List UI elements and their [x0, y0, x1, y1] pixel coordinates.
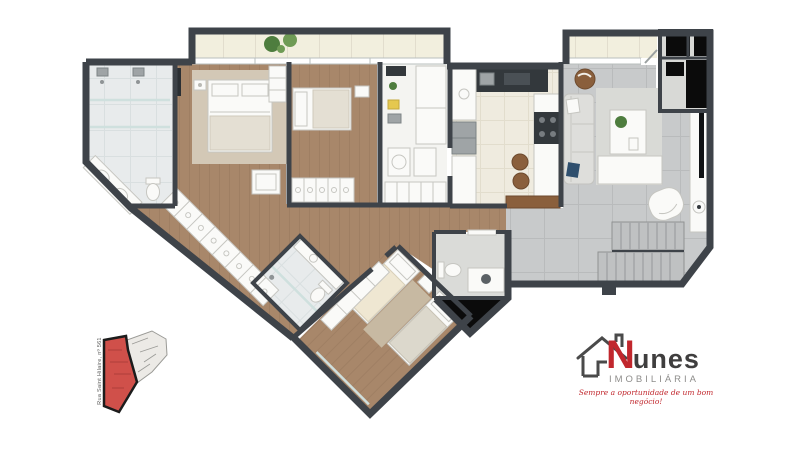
floorplan-page: Nunes IMOBILIÁRIA Sempre a oportunidade … — [0, 0, 800, 450]
washing-machine-icon — [388, 148, 410, 176]
elevator-core — [660, 31, 711, 111]
toilet-icon — [438, 262, 461, 278]
dining-table — [598, 156, 662, 184]
balcony-bedrooms — [193, 31, 446, 62]
counter — [416, 66, 446, 144]
pillow — [566, 162, 580, 178]
plant-icon — [283, 33, 297, 47]
street-label: Rua Saint Hilaire, nº 561 — [97, 323, 103, 419]
brand-tagline: Sempre a oportunidade de um bom negócio! — [566, 388, 726, 406]
entry-stub — [602, 284, 616, 295]
pouf — [575, 69, 595, 89]
window-sliding — [193, 58, 446, 64]
coffee-table — [610, 110, 646, 154]
bar-stool — [512, 154, 528, 170]
sink-icon — [481, 274, 491, 284]
brand-name: Nunes — [606, 333, 700, 378]
door-leaf — [468, 230, 496, 235]
bar-stool — [513, 173, 529, 189]
brand-logo: Nunes IMOBILIÁRIA Sempre a oportunidade … — [566, 330, 726, 406]
cooktop-icon — [534, 112, 560, 144]
shower-head-icon — [97, 68, 108, 76]
laundry-sink — [414, 148, 436, 176]
closet — [385, 182, 446, 203]
counter — [452, 156, 476, 205]
pillow — [566, 98, 580, 114]
plant-icon — [615, 116, 627, 128]
wardrobe — [292, 178, 354, 202]
location-inset — [104, 331, 167, 412]
counter — [534, 94, 560, 204]
brand-rest: unes — [633, 344, 700, 374]
bar-counter — [506, 196, 560, 208]
brand-initial: N — [606, 333, 633, 377]
shower-head-icon — [133, 68, 144, 76]
window-sliding — [567, 58, 641, 64]
counter — [452, 66, 476, 120]
wardrobe — [269, 66, 286, 102]
plant-icon — [389, 82, 397, 90]
nightstand — [355, 86, 369, 97]
toilet-icon — [146, 178, 160, 201]
tv-icon — [699, 112, 704, 178]
brand-subtitle: IMOBILIÁRIA — [594, 374, 714, 385]
